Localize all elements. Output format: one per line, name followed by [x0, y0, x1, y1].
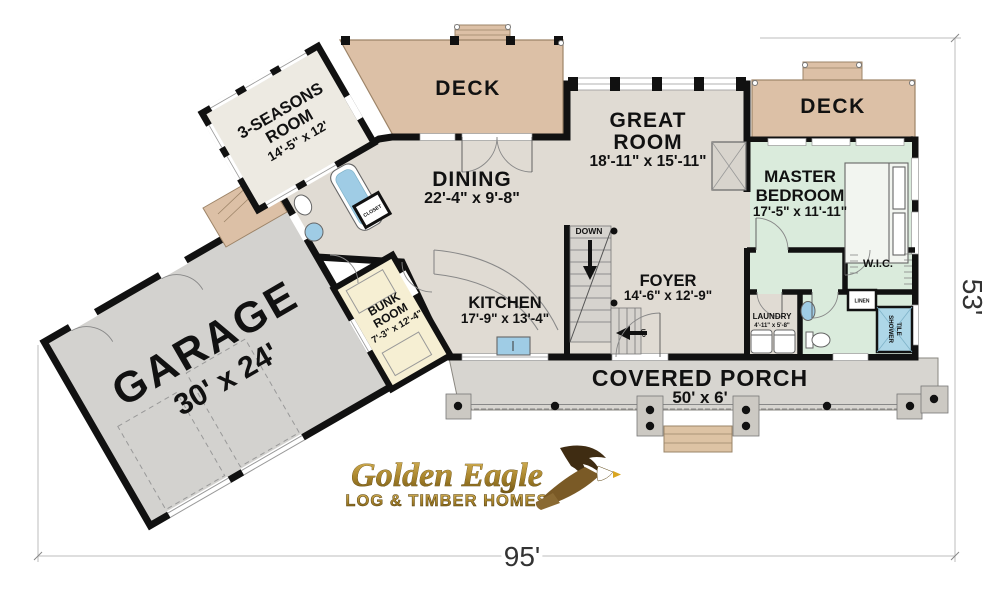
tile-shower-label-2: SHOWER [887, 315, 894, 343]
stairs-down-label: DOWN [576, 226, 603, 236]
logo: Golden Eagle LOG & TIMBER HOMES [345, 446, 621, 510]
laundry-dims: 4'-11" x 5'-8" [754, 323, 790, 329]
floor-plan-page: 95' 53' [0, 0, 1000, 595]
kitchen-dims: 17'-9" x 13'-4" [461, 311, 549, 326]
deck-left-label: DECK [435, 77, 501, 100]
stairs-up-label: UP [639, 329, 645, 337]
great-room-label-2: ROOM [613, 131, 682, 154]
tile-shower-label-1: TILE [895, 322, 902, 335]
eagle-icon [536, 446, 621, 510]
porch-steps [664, 426, 732, 452]
floor-plan-svg: 95' 53' [0, 0, 1000, 595]
linen-label: LINEN [855, 299, 870, 305]
tile-shower: TILE SHOWER [877, 307, 912, 352]
deck-right-label: DECK [800, 95, 866, 118]
logo-block-text: LOG & TIMBER HOMES [345, 492, 548, 510]
overall-height-dimension: 53' [957, 279, 988, 316]
master-bedroom-dims: 17'-5" x 11'-11" [753, 204, 847, 219]
logo-script-text: Golden Eagle [351, 457, 543, 494]
master-bedroom-label-2: BEDROOM [756, 186, 845, 205]
foyer-dims: 14'-6" x 12'-9" [624, 288, 712, 303]
master-bed [845, 163, 908, 263]
great-room-dims: 18'-11" x 15'-11" [590, 153, 707, 170]
dining-label: DINING [432, 168, 512, 191]
overall-width-dimension: 95' [504, 541, 541, 572]
covered-porch-dims: 50' x 6' [672, 388, 727, 407]
kitchen-label: KITCHEN [468, 294, 541, 312]
dining-dims: 22'-4" x 9'-8" [424, 190, 520, 207]
wic-label: W.I.C. [863, 258, 893, 270]
laundry-label: LAUNDRY [753, 312, 792, 321]
great-room-label-1: GREAT [610, 109, 687, 132]
master-bedroom-label-1: MASTER [764, 167, 836, 186]
fireplace [712, 142, 746, 190]
linen-closet: LINEN [848, 290, 876, 310]
